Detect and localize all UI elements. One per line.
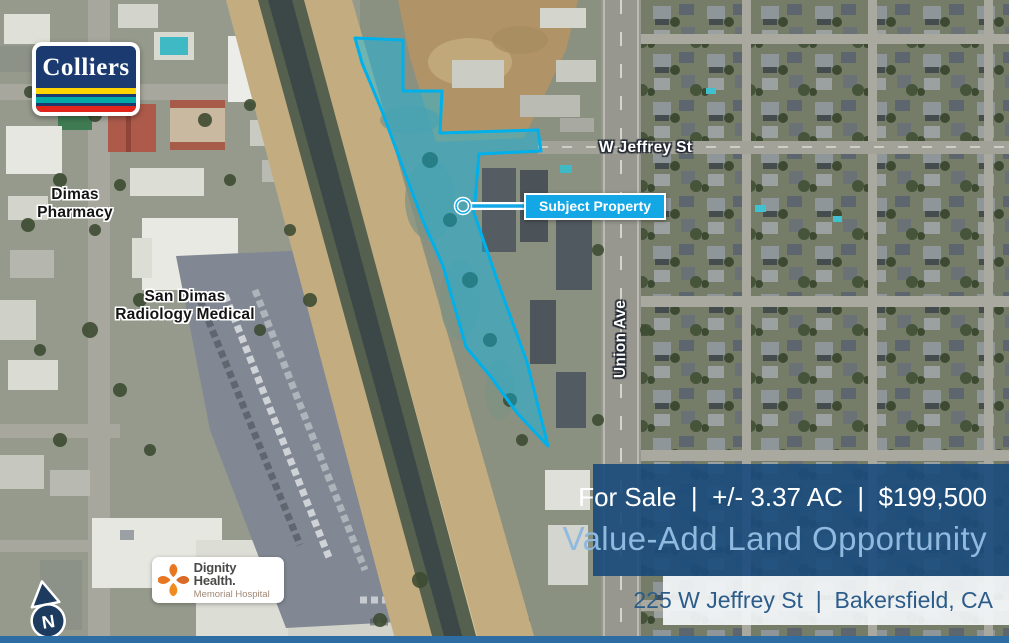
colliers-stripe-yellow-icon	[36, 88, 136, 94]
for-sale-banner: For Sale | +/- 3.37 AC | $199,500 Value-…	[593, 464, 1009, 576]
address-bar: 225 W Jeffrey St | Bakersfield, CA	[663, 576, 1009, 625]
radiology-label-line1: San Dimas	[75, 288, 295, 306]
pharmacy-label-line1: Dimas	[15, 186, 135, 204]
map-label-dimas-pharmacy: Dimas Pharmacy	[15, 186, 135, 222]
bottom-accent-bar	[0, 636, 1009, 643]
dignity-health-text: Dignity Health. Memorial Hospital	[194, 561, 278, 600]
subject-property-callout: Subject Property	[452, 192, 666, 220]
colliers-stripe-red-icon	[36, 106, 136, 112]
colliers-logo: Colliers	[32, 42, 140, 116]
dignity-health-subtitle: Memorial Hospital	[194, 590, 278, 600]
colliers-logo-field: Colliers	[36, 46, 136, 112]
subject-property-label: Subject Property	[524, 193, 666, 220]
sale-terms-line: For Sale | +/- 3.37 AC | $199,500	[578, 482, 987, 513]
street-label-w-jeffrey-st: W Jeffrey St	[599, 139, 692, 157]
property-address: 225 W Jeffrey St | Bakersfield, CA	[633, 587, 993, 614]
dignity-health-logo: Dignity Health. Memorial Hospital	[152, 557, 284, 603]
north-arrow-icon: N	[9, 573, 85, 643]
callout-leader-line	[452, 192, 524, 220]
headline-line: Value-Add Land Opportunity	[563, 520, 987, 558]
colliers-wordmark: Colliers	[36, 46, 136, 88]
dignity-health-name: Dignity Health.	[194, 561, 278, 587]
colliers-stripe-teal-icon	[36, 97, 136, 103]
pharmacy-label-line2: Pharmacy	[15, 204, 135, 222]
flyer-canvas: Dimas Pharmacy San Dimas Radiology Medic…	[0, 0, 1009, 643]
street-label-union-ave: Union Ave	[612, 289, 630, 389]
radiology-label-line2: Radiology Medical	[75, 306, 295, 324]
dignity-health-flower-icon	[158, 563, 189, 597]
map-label-san-dimas-radiology: San Dimas Radiology Medical	[75, 288, 295, 324]
